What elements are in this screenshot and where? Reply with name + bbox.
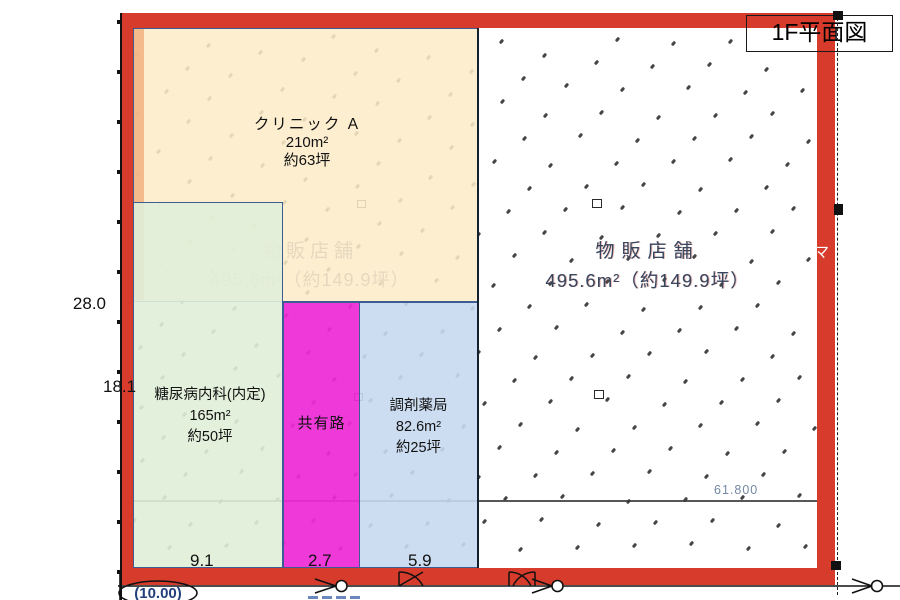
frame-top: [122, 13, 835, 28]
door-swing-symbol: [399, 572, 423, 586]
left-survey-line: [120, 13, 122, 600]
column-square: [594, 390, 604, 399]
right-boundary-dashed-line: [837, 13, 838, 595]
shared-path-label: 共有路: [283, 412, 360, 433]
pharmacy-label: 調剤薬局 82.6m² 約25坪: [362, 396, 475, 459]
survey-tick: [117, 270, 122, 274]
band-text-fragment: マ: [814, 241, 829, 262]
pharmacy-area: 82.6m²: [362, 417, 475, 438]
survey-tick: [117, 220, 122, 224]
dimension-left-partial: 18.1: [103, 377, 136, 397]
clinic-area: 210m²: [217, 134, 397, 152]
internal-name: 糖尿病内科(内定): [135, 385, 285, 406]
bottom-survey-strip: (10.00): [100, 566, 900, 600]
pharmacy-tsubo: 約25坪: [362, 438, 475, 459]
clinic-tsubo: 約63坪: [217, 152, 397, 170]
retail-area: 495.6m²（約149.9坪）: [478, 267, 817, 293]
dimension-left-total: 28.0: [60, 294, 106, 314]
retail-label: 物販店舗 495.6m²（約149.9坪）: [478, 236, 817, 293]
column-square: [592, 199, 602, 208]
frame-right: [817, 13, 835, 585]
survey-tick: [117, 370, 122, 374]
clinic-label: クリニック A 210m² 約63坪: [217, 112, 397, 170]
site-width-dimension: 61.800: [714, 483, 758, 497]
survey-tick: [117, 470, 122, 474]
survey-tick: [117, 170, 122, 174]
double-door-swing-symbol: [509, 572, 535, 586]
survey-tick: [117, 320, 122, 324]
survey-tick: [117, 20, 122, 24]
internal-tsubo: 約50坪: [135, 427, 285, 448]
tenant-boundary-wall: [477, 28, 479, 568]
dimension-bottom-pharmacy: 5.9: [408, 551, 432, 571]
boundary-mark: [834, 204, 843, 215]
survey-tick: [117, 120, 122, 124]
clipped-note-fragment: [308, 596, 360, 599]
page-title: 1F平面図: [746, 15, 893, 52]
frame-left: [122, 13, 133, 585]
dimension-bottom-shared: 2.7: [308, 551, 332, 571]
internal-area: 165m²: [135, 406, 285, 427]
retail-name: 物販店舗: [478, 236, 817, 263]
zone-shared-path: [283, 302, 360, 568]
band-text-fragment: ）: [812, 260, 827, 281]
internal-medicine-label: 糖尿病内科(内定) 165m² 約50坪: [135, 385, 285, 448]
pharmacy-name: 調剤薬局: [362, 396, 475, 417]
survey-tick: [117, 70, 122, 74]
survey-tick: [117, 420, 122, 424]
corner-mark: [833, 11, 843, 20]
survey-value: (10.00): [134, 585, 182, 600]
survey-tick: [117, 520, 122, 524]
dimension-bottom-internal: 9.1: [190, 551, 214, 571]
clinic-name: クリニック A: [217, 112, 397, 134]
